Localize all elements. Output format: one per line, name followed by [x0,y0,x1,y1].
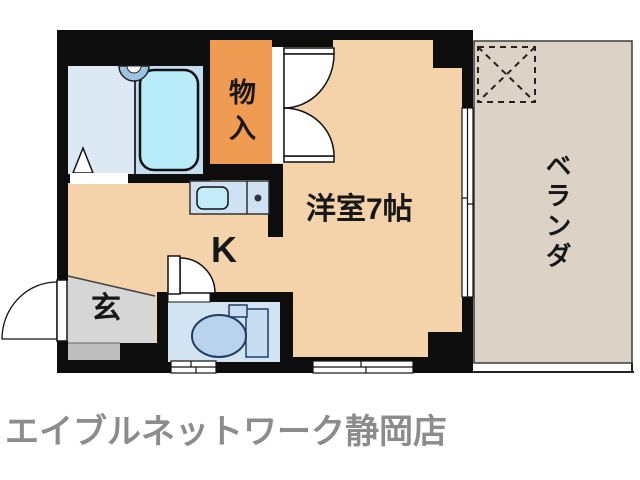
toilet-cistern [229,305,247,317]
double-door-top-leaf [284,48,334,54]
bathroom-door-gap [70,173,128,184]
bathtub [140,70,198,170]
entrance-door-swing [2,282,57,339]
kitchen-sink [197,187,228,209]
toilet-bowl [192,315,246,357]
veranda-area [474,41,632,363]
wall-toilet-top [210,292,283,302]
toilet-tank [246,309,268,357]
wall-right-lower [462,297,473,373]
wall-right-upper [462,30,473,108]
window-right-veranda [462,108,473,297]
wall-entrance-block [120,343,160,373]
wall-closet-bottom [210,164,283,180]
veranda-railing [469,363,634,372]
floor-plan-page: { "page": { "background": "#ffffff" }, "… [0,0,640,480]
wall-top-door [272,30,333,47]
closet-doorway [272,47,283,163]
footer-brand-text: エイブルネットワーク静岡店 [5,404,447,453]
wall-kitchen-room-stub [268,180,283,237]
burner-dot-icon [255,195,262,202]
wall-toilet-right [280,292,293,373]
kitchen-door-leaf [168,256,180,294]
wall-top-room [333,30,433,40]
wall-step-right [428,332,462,373]
double-door-bottom-leaf [284,156,334,162]
wall-top-closet [210,30,272,40]
window-bottom-toilet [171,361,216,373]
wall-bath-closet [203,40,210,183]
wall-left-upper [57,66,68,281]
window-bottom-room [313,361,413,373]
closet-area [210,40,272,164]
entrance-door-leaf [57,280,67,341]
wall-top-left [57,30,210,66]
